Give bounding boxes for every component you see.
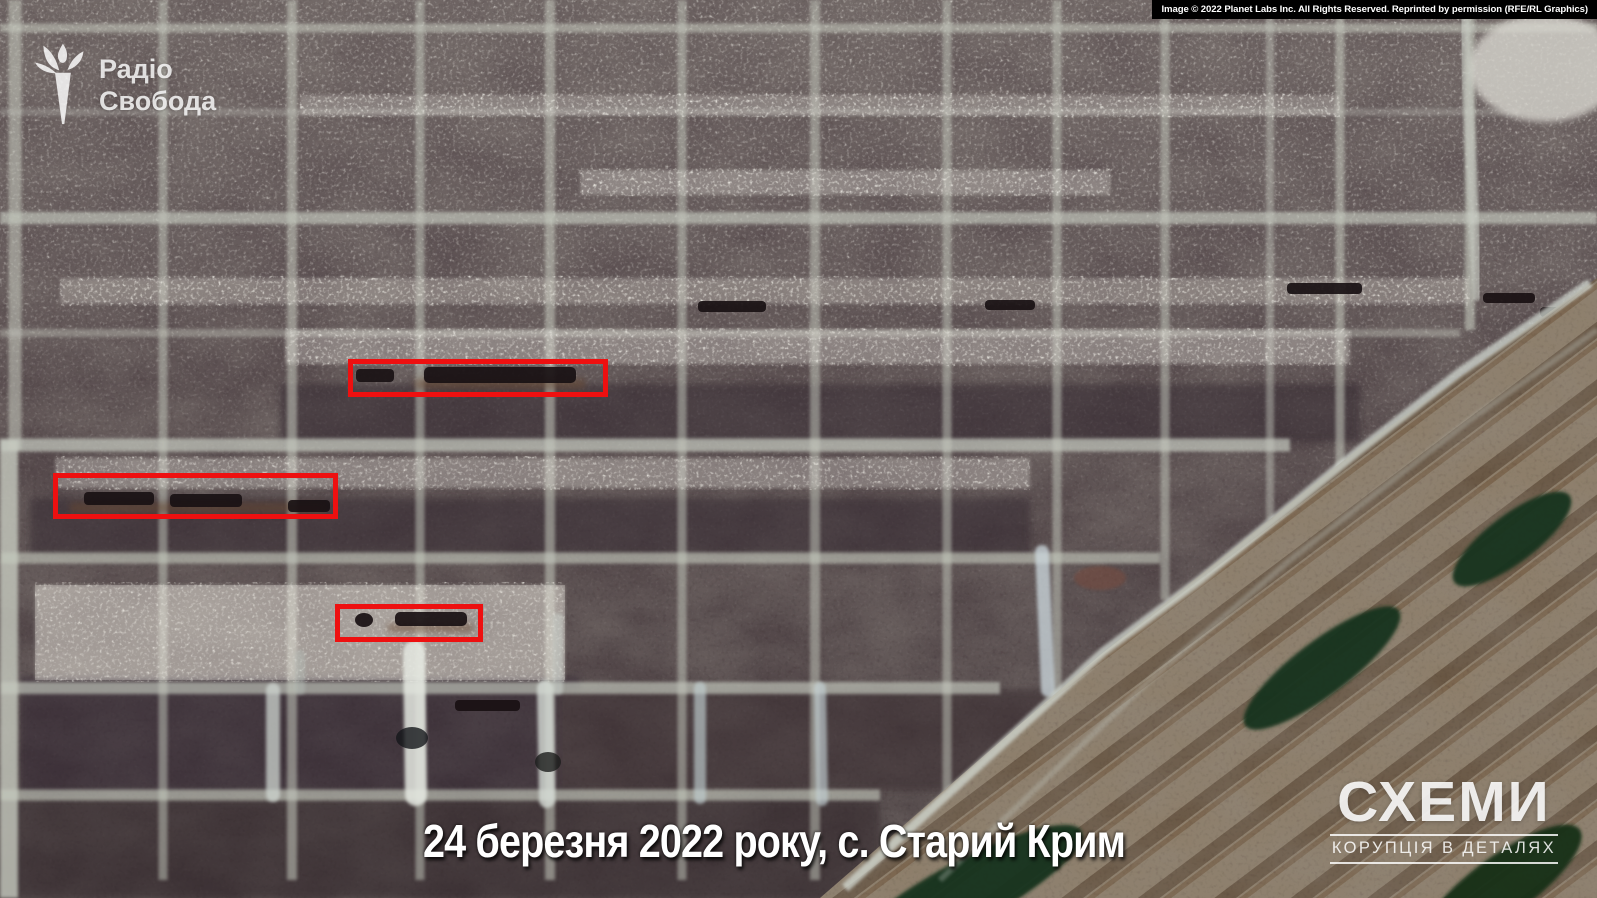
annotation-box [53,473,338,519]
satellite-annotated-image: Image © 2022 Planet Labs Inc. All Rights… [0,0,1597,898]
credit-text: Image © 2022 Planet Labs Inc. All Rights… [1161,4,1588,15]
skhemy-title: СХЕМИ [1330,774,1558,831]
skhemy-subtitle: КОРУПЦІЯ В ДЕТАЛЯХ [1330,834,1558,864]
caption-text: 24 березня 2022 року, с. Старий Крим [344,814,1204,868]
radio-svoboda-line1: Радіо [99,54,216,86]
credit-bar: Image © 2022 Planet Labs Inc. All Rights… [1152,0,1597,19]
annotation-box [335,604,483,642]
annotation-box [348,359,608,397]
skhemy-logo: СХЕМИ КОРУПЦІЯ В ДЕТАЛЯХ [1330,774,1558,864]
torch-icon [34,40,90,131]
radio-svoboda-logo: Радіо Свобода [34,40,216,131]
radio-svoboda-line2: Свобода [99,86,216,118]
satellite-imagery [0,0,1597,898]
